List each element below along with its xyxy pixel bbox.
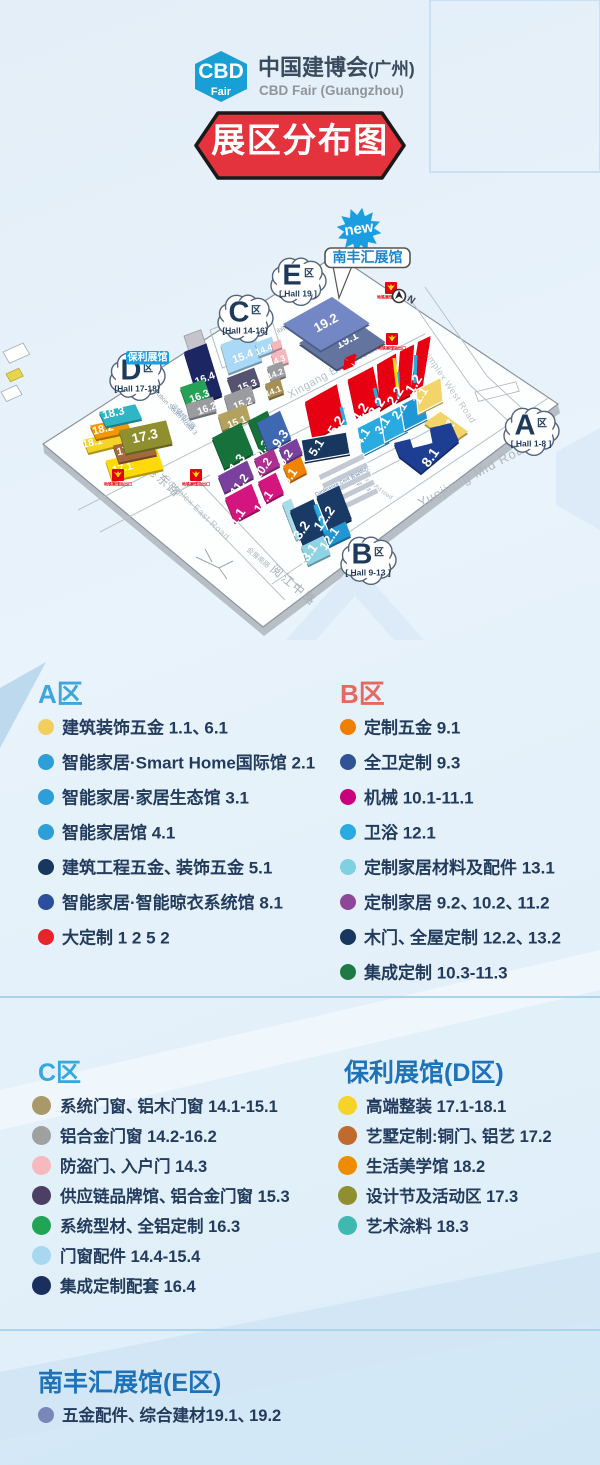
svg-text:地铁展馆站出口: 地铁展馆站出口 <box>182 481 210 487</box>
svg-text:区: 区 <box>304 268 314 280</box>
svg-text:A: A <box>515 410 536 442</box>
svg-text:[Hall 14-16]: [Hall 14-16] <box>222 325 268 335</box>
svg-text:保利展馆: 保利展馆 <box>127 351 168 364</box>
svg-text:E: E <box>282 260 301 292</box>
svg-text:B: B <box>352 539 373 571</box>
svg-text:区: 区 <box>374 547 384 559</box>
svg-text:[Hall 17-18]: [Hall 17-18] <box>114 383 160 393</box>
svg-text:中国建博会(广州): 中国建博会(广州) <box>258 55 415 80</box>
svg-text:[ Hall 19 ]: [ Hall 19 ] <box>279 288 317 298</box>
svg-text:区: 区 <box>537 418 547 430</box>
svg-text:展区分布图: 展区分布图 <box>211 122 389 160</box>
svg-text:Fair: Fair <box>211 86 232 98</box>
svg-text:[ Hall 1-8 ]: [ Hall 1-8 ] <box>511 438 552 448</box>
svg-text:地铁展馆站出口: 地铁展馆站出口 <box>378 345 406 351</box>
svg-text:南丰汇展馆: 南丰汇展馆 <box>333 249 403 265</box>
svg-text:CBD Fair (Guangzhou): CBD Fair (Guangzhou) <box>259 83 404 98</box>
svg-text:地铁展馆站出口: 地铁展馆站出口 <box>104 481 132 487</box>
svg-text:区: 区 <box>251 305 261 317</box>
svg-text:C: C <box>229 297 250 329</box>
svg-text:[ Hall 9-13 ]: [ Hall 9-13 ] <box>345 567 391 577</box>
svg-text:CBD: CBD <box>198 60 244 83</box>
